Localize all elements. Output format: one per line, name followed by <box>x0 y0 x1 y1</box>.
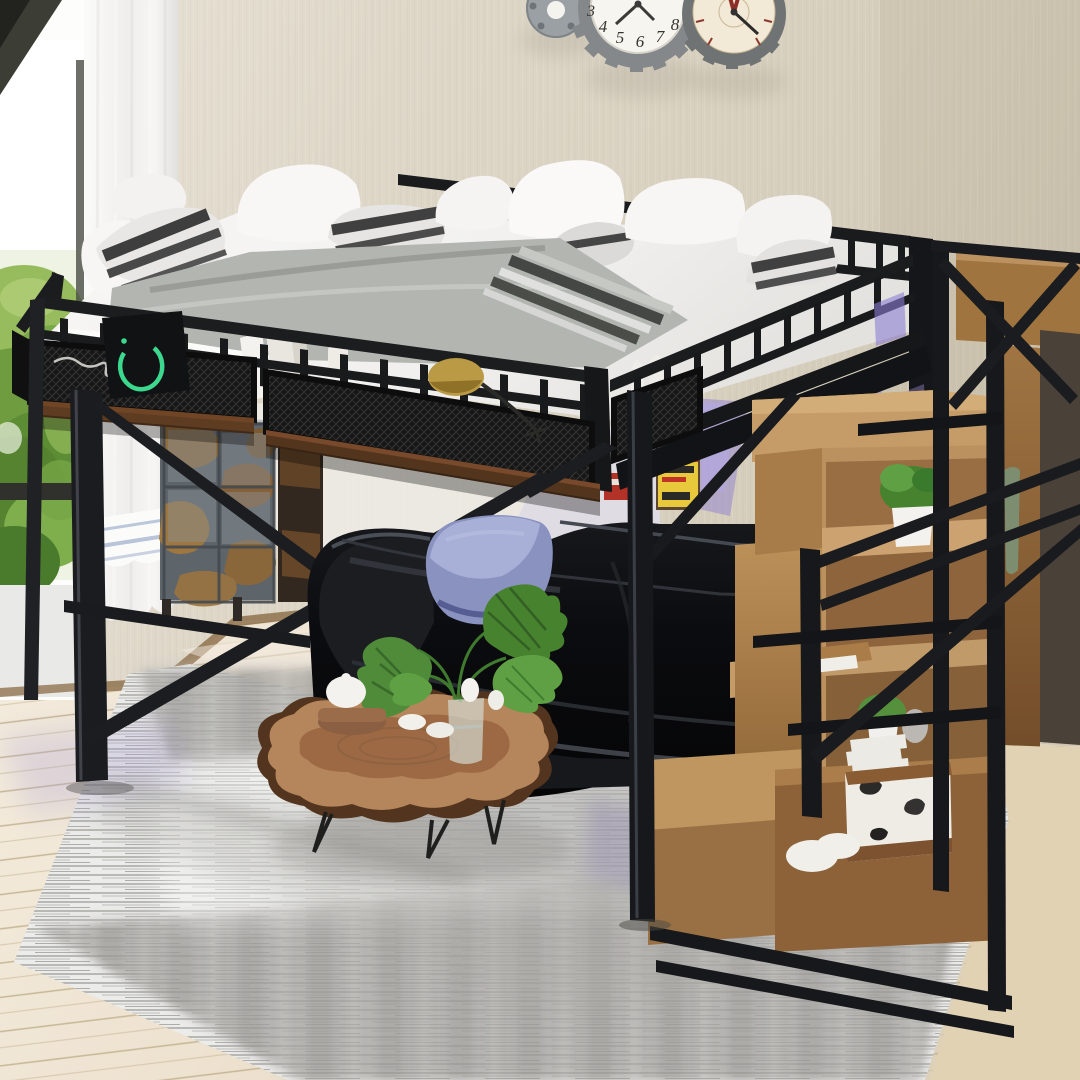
svg-text:5: 5 <box>616 28 625 47</box>
svg-text:8: 8 <box>671 15 680 34</box>
svg-text:4: 4 <box>599 17 608 36</box>
svg-text:3: 3 <box>586 3 595 20</box>
svg-text:6: 6 <box>636 32 645 51</box>
